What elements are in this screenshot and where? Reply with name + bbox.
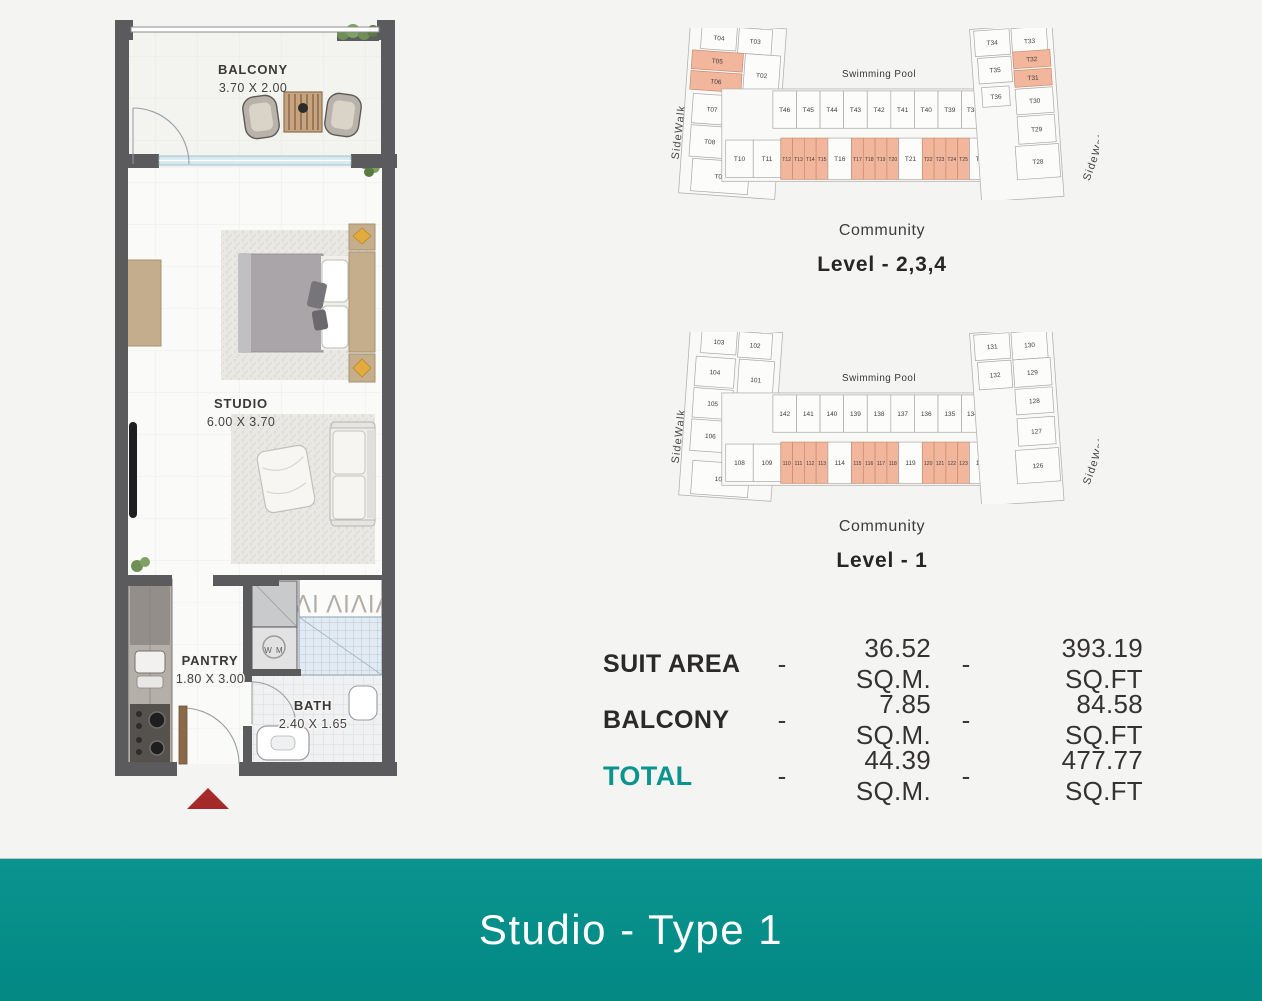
lounge-area [231, 414, 375, 564]
unit-label-T21: T21 [905, 156, 917, 163]
unit-label-T41: T41 [897, 107, 909, 114]
unit-label-T24: T24 [947, 157, 956, 163]
unit-label-128: 128 [1029, 398, 1041, 406]
balcony-table [284, 92, 322, 132]
headboard [349, 252, 375, 352]
entry-door-leaf [179, 706, 187, 764]
pantry-label: PANTRY [182, 653, 239, 668]
unit-label-T18: T18 [865, 157, 874, 163]
sofa [330, 422, 375, 526]
unit-label-142: 142 [779, 411, 790, 418]
kitchen-counter [128, 579, 172, 765]
separator: - [761, 761, 803, 792]
unit-label-T43: T43 [850, 107, 862, 114]
unit-label-103: 103 [713, 339, 725, 347]
balcony-dims: 3.70 X 2.00 [219, 81, 287, 95]
unit-label-T28: T28 [1032, 158, 1044, 166]
separator: - [931, 705, 1001, 736]
unit-label-T10: T10 [734, 156, 746, 163]
unit-label-T17: T17 [853, 157, 862, 163]
suit-area-sqm: 36.52 SQ.M. [803, 633, 931, 695]
unit-label-106: 106 [705, 433, 717, 441]
unit-label-117: 117 [877, 461, 885, 467]
unit-label-123: 123 [959, 461, 968, 467]
unit-label-138: 138 [874, 411, 885, 418]
unit-label-114: 114 [835, 460, 846, 467]
community-label: Community [665, 222, 1099, 240]
unit-label-108: 108 [734, 460, 745, 467]
sidewalk-label-right: SideWalk [1081, 431, 1099, 486]
tv-cabinet [127, 260, 161, 346]
wm-closet [252, 581, 297, 671]
unit-label-T40: T40 [921, 107, 933, 114]
unit-label-112: 112 [806, 461, 814, 467]
unit-label-126: 126 [1032, 462, 1044, 470]
unit-label-T35: T35 [989, 67, 1001, 75]
siteplan-level-1: Swimming Pool SideWalk SideWalk 10310210… [665, 332, 1099, 504]
area-row-balcony: BALCONY - 7.85 SQ.M. - 84.58 SQ.FT [603, 689, 1143, 745]
unit-label-T13: T13 [794, 157, 803, 163]
unit-label-T20: T20 [888, 157, 897, 163]
swimming-pool-label: Swimming Pool [842, 69, 916, 80]
unit-label-T29: T29 [1031, 126, 1043, 134]
unit-label-T15: T15 [818, 157, 827, 163]
unit-label-119: 119 [905, 460, 916, 467]
title-banner: Studio - Type 1 [0, 858, 1262, 1001]
caption-level-1: Community Level - 1 [665, 518, 1099, 573]
unit-label-T45: T45 [803, 107, 815, 114]
unit-label-T31: T31 [1027, 75, 1039, 83]
stove [130, 704, 170, 764]
level-label: Level - 2,3,4 [665, 253, 1099, 277]
pantry-dims: 1.80 X 3.00 [176, 672, 244, 686]
unit-label-136: 136 [921, 411, 932, 418]
studio-dims: 6.00 X 3.70 [207, 415, 275, 429]
unit-label-110: 110 [783, 461, 791, 467]
unit-label-T46: T46 [779, 107, 791, 114]
total-area-sqm: 44.39 SQ.M. [803, 745, 931, 807]
page: ΙΛΙ ΛΙΛΙΛ [0, 0, 1262, 1000]
balcony-area-sqm: 7.85 SQ.M. [803, 689, 931, 751]
area-row-suit: SUIT AREA - 36.52 SQ.M. - 393.19 SQ.FT [603, 633, 1143, 689]
unit-label-137: 137 [897, 411, 908, 418]
caption-level-234: Community Level - 2,3,4 [665, 222, 1099, 277]
unit-label-104: 104 [709, 369, 721, 377]
unit-label-T16: T16 [834, 156, 846, 163]
unit-label-T05: T05 [711, 58, 723, 66]
unit-label-116: 116 [865, 461, 873, 467]
unit-label-T19: T19 [877, 157, 886, 163]
unit-label-T33: T33 [1024, 38, 1036, 46]
unit-label-109: 109 [762, 460, 773, 467]
area-row-total: TOTAL - 44.39 SQ.M. - 477.77 SQ.FT [603, 745, 1143, 801]
unit-label-102: 102 [749, 342, 761, 350]
pillow [322, 260, 348, 302]
unit-label-T08: T08 [704, 139, 716, 147]
siteplan-level-234: Swimming Pool SideWalk SideWalk T04T03T0… [665, 28, 1099, 200]
unit-label-129: 129 [1027, 369, 1039, 377]
unit-label-115: 115 [853, 461, 861, 467]
wm-label: W M [264, 646, 283, 655]
page-title: Studio - Type 1 [479, 906, 783, 954]
unit-label-T04: T04 [713, 35, 725, 43]
unit-label-132: 132 [990, 372, 1002, 380]
separator: - [931, 649, 1001, 680]
unit-label-T06: T06 [710, 78, 722, 86]
entrance-arrow-icon [187, 788, 229, 809]
tv [129, 422, 137, 518]
bath-dims: 2.40 X 1.65 [279, 717, 347, 731]
community-label: Community [665, 518, 1099, 536]
unit-label-130: 130 [1024, 342, 1036, 350]
area-table: SUIT AREA - 36.52 SQ.M. - 393.19 SQ.FT B… [603, 633, 1143, 801]
unit-label-141: 141 [803, 411, 814, 418]
wardrobe-glyphs: ΙΛΙ ΛΙΛΙΛ [287, 591, 392, 619]
unit-label-131: 131 [987, 344, 999, 352]
unit-label-T44: T44 [826, 107, 838, 114]
bath-label: BATH [294, 698, 332, 713]
total-area-sqft: 477.77 SQ.FT [1001, 745, 1143, 807]
unit-label-122: 122 [948, 461, 957, 467]
balcony-area-sqft: 84.58 SQ.FT [1001, 689, 1143, 751]
unit-label-127: 127 [1031, 428, 1043, 436]
unit-label-T03: T03 [749, 38, 761, 46]
separator: - [931, 761, 1001, 792]
unit-label-T34: T34 [986, 40, 998, 48]
suit-area-sqft: 393.19 SQ.FT [1001, 633, 1143, 695]
kitchen-sink [135, 651, 165, 673]
balcony-area-label: BALCONY [603, 706, 761, 735]
unit-label-140: 140 [826, 411, 837, 418]
unit-label-T32: T32 [1026, 56, 1038, 64]
balcony-label: BALCONY [218, 62, 288, 77]
unit-label-139: 139 [850, 411, 861, 418]
unit-label-111: 111 [795, 461, 803, 467]
unit-label-T36: T36 [990, 93, 1002, 101]
unit-label-T25: T25 [959, 157, 968, 163]
unit-label-135: 135 [944, 411, 955, 418]
unit-label-T23: T23 [936, 157, 945, 163]
swimming-pool-label: Swimming Pool [842, 373, 916, 384]
unit-label-T30: T30 [1029, 98, 1041, 106]
unit-label-101: 101 [750, 377, 762, 385]
bed-area [221, 224, 375, 382]
floorplan: ΙΛΙ ΛΙΛΙΛ [113, 14, 397, 814]
toilet [349, 686, 377, 720]
unit-label-113: 113 [818, 461, 826, 467]
total-area-label: TOTAL [603, 761, 761, 792]
unit-label-T11: T11 [762, 156, 773, 163]
studio-label: STUDIO [214, 396, 268, 411]
sidewalk-label-right: SideWalk [1081, 127, 1099, 182]
level-label: Level - 1 [665, 549, 1099, 573]
unit-label-T12: T12 [782, 157, 791, 163]
unit-label-T07: T07 [706, 106, 718, 114]
unit-label-T42: T42 [873, 107, 885, 114]
unit-label-T39: T39 [944, 107, 956, 114]
suit-area-label: SUIT AREA [603, 650, 761, 679]
unit-label-T22: T22 [924, 157, 933, 163]
unit-label-118: 118 [889, 461, 897, 467]
separator: - [761, 705, 803, 736]
separator: - [761, 649, 803, 680]
unit-label-120: 120 [924, 461, 933, 467]
ottoman [256, 444, 316, 514]
unit-label-121: 121 [936, 461, 945, 467]
unit-label-T02: T02 [756, 72, 768, 80]
unit-label-105: 105 [707, 401, 719, 409]
unit-label-T14: T14 [806, 157, 815, 163]
balcony-railing [131, 27, 379, 32]
